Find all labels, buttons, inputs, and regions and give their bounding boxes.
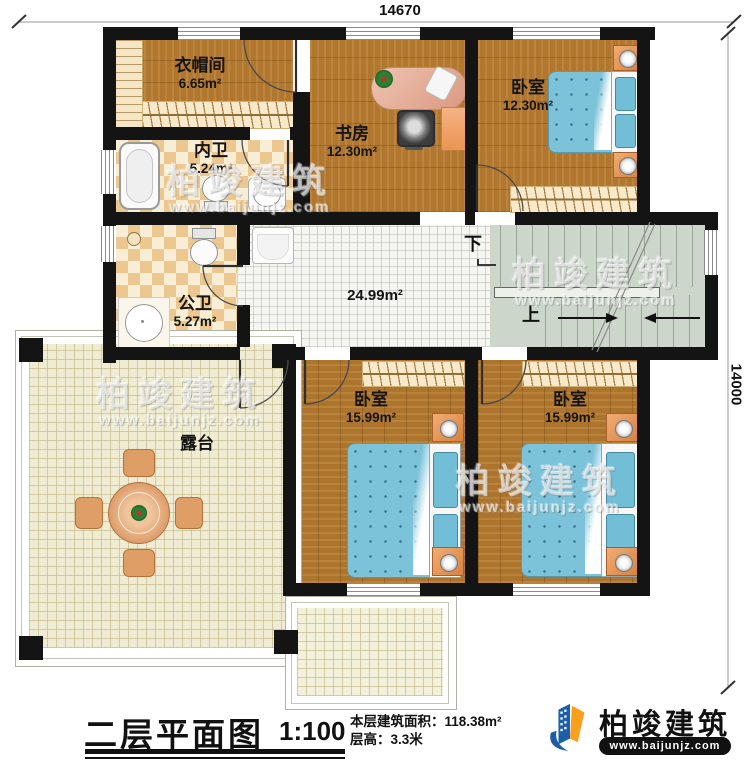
wall bbox=[637, 27, 650, 225]
lamp bbox=[619, 50, 637, 68]
pillow bbox=[433, 452, 458, 508]
wardrobe bbox=[142, 101, 295, 129]
bed-sheet bbox=[413, 444, 429, 575]
wardrobe bbox=[362, 361, 465, 387]
terrace-pillar bbox=[19, 636, 43, 660]
stair-treads-upper bbox=[500, 225, 705, 287]
wall bbox=[637, 347, 650, 596]
wall bbox=[465, 347, 478, 596]
floor-porch bbox=[297, 608, 443, 696]
dimension-right: 14000 bbox=[728, 350, 745, 420]
wall bbox=[283, 583, 347, 596]
floor-plan: 14670 14000 衣帽间 6.65m² 内卫 5.24m² 书房 12.3… bbox=[0, 0, 750, 767]
desk-return bbox=[441, 107, 466, 151]
nightstand bbox=[432, 547, 464, 576]
wall bbox=[515, 212, 718, 225]
floor-area-line: 本层建筑面积：118.38m² bbox=[350, 713, 502, 730]
wall bbox=[465, 27, 478, 212]
wall bbox=[290, 127, 310, 140]
wall bbox=[237, 225, 250, 265]
lamp bbox=[440, 420, 458, 438]
title-rule-thin bbox=[85, 757, 345, 759]
wardrobe bbox=[510, 186, 639, 213]
wall bbox=[103, 212, 420, 225]
terrace-pillar bbox=[19, 338, 43, 362]
wall bbox=[600, 583, 650, 596]
title-rule-thick bbox=[85, 749, 345, 754]
patio-chair bbox=[123, 449, 155, 477]
patio-table bbox=[108, 482, 170, 544]
lamp bbox=[440, 554, 458, 572]
sink-counter bbox=[118, 297, 170, 349]
washing-machine bbox=[252, 227, 294, 264]
wall bbox=[350, 347, 482, 360]
patio-chair bbox=[175, 497, 203, 529]
pillow bbox=[615, 77, 636, 111]
nightstand bbox=[432, 413, 464, 442]
wardrobe bbox=[522, 361, 639, 387]
computer-monitor bbox=[397, 110, 435, 147]
floor-drain bbox=[127, 232, 141, 246]
dimension-top: 14670 bbox=[340, 2, 460, 19]
floor-height-line: 层高：3.3米 bbox=[350, 731, 423, 748]
lamp bbox=[619, 157, 637, 175]
wall bbox=[103, 27, 116, 363]
window bbox=[178, 27, 240, 40]
window bbox=[347, 583, 420, 596]
wall bbox=[293, 92, 310, 212]
brand-url: www.baijunjz.com bbox=[599, 737, 731, 755]
toilet bbox=[189, 228, 219, 266]
bed-sheet bbox=[585, 444, 601, 574]
wall bbox=[705, 212, 718, 230]
nightstand bbox=[606, 547, 639, 576]
window bbox=[346, 27, 420, 40]
window bbox=[101, 226, 116, 262]
plan-scale: 1:100 bbox=[279, 716, 346, 747]
window bbox=[513, 27, 600, 40]
wall bbox=[283, 347, 296, 596]
stair-handrail bbox=[494, 287, 660, 298]
wall bbox=[420, 583, 513, 596]
closet bbox=[116, 40, 143, 127]
desk-plant bbox=[375, 70, 393, 88]
bed-sheet bbox=[594, 72, 611, 150]
nightstand bbox=[606, 413, 639, 442]
toilet bbox=[201, 175, 231, 213]
patio-chair bbox=[75, 497, 103, 529]
lamp bbox=[615, 554, 633, 572]
wall bbox=[237, 305, 250, 347]
window bbox=[704, 230, 718, 275]
lamp bbox=[615, 420, 633, 438]
wall bbox=[465, 212, 475, 225]
brand-logo-icon bbox=[545, 698, 595, 752]
window bbox=[513, 583, 600, 596]
stair-treads-lower bbox=[545, 295, 705, 347]
wall bbox=[103, 347, 240, 360]
wall bbox=[116, 127, 250, 140]
pillow bbox=[606, 452, 635, 508]
bathtub bbox=[119, 142, 160, 210]
patio-chair bbox=[123, 549, 155, 577]
stair-up-label: 上 bbox=[522, 301, 540, 327]
window bbox=[101, 150, 116, 194]
wall bbox=[527, 347, 718, 360]
terrace-pillar bbox=[274, 630, 298, 654]
sink bbox=[248, 177, 286, 211]
stair-down-label: 下 bbox=[464, 230, 482, 256]
wall bbox=[705, 275, 718, 360]
pillow bbox=[615, 114, 636, 148]
